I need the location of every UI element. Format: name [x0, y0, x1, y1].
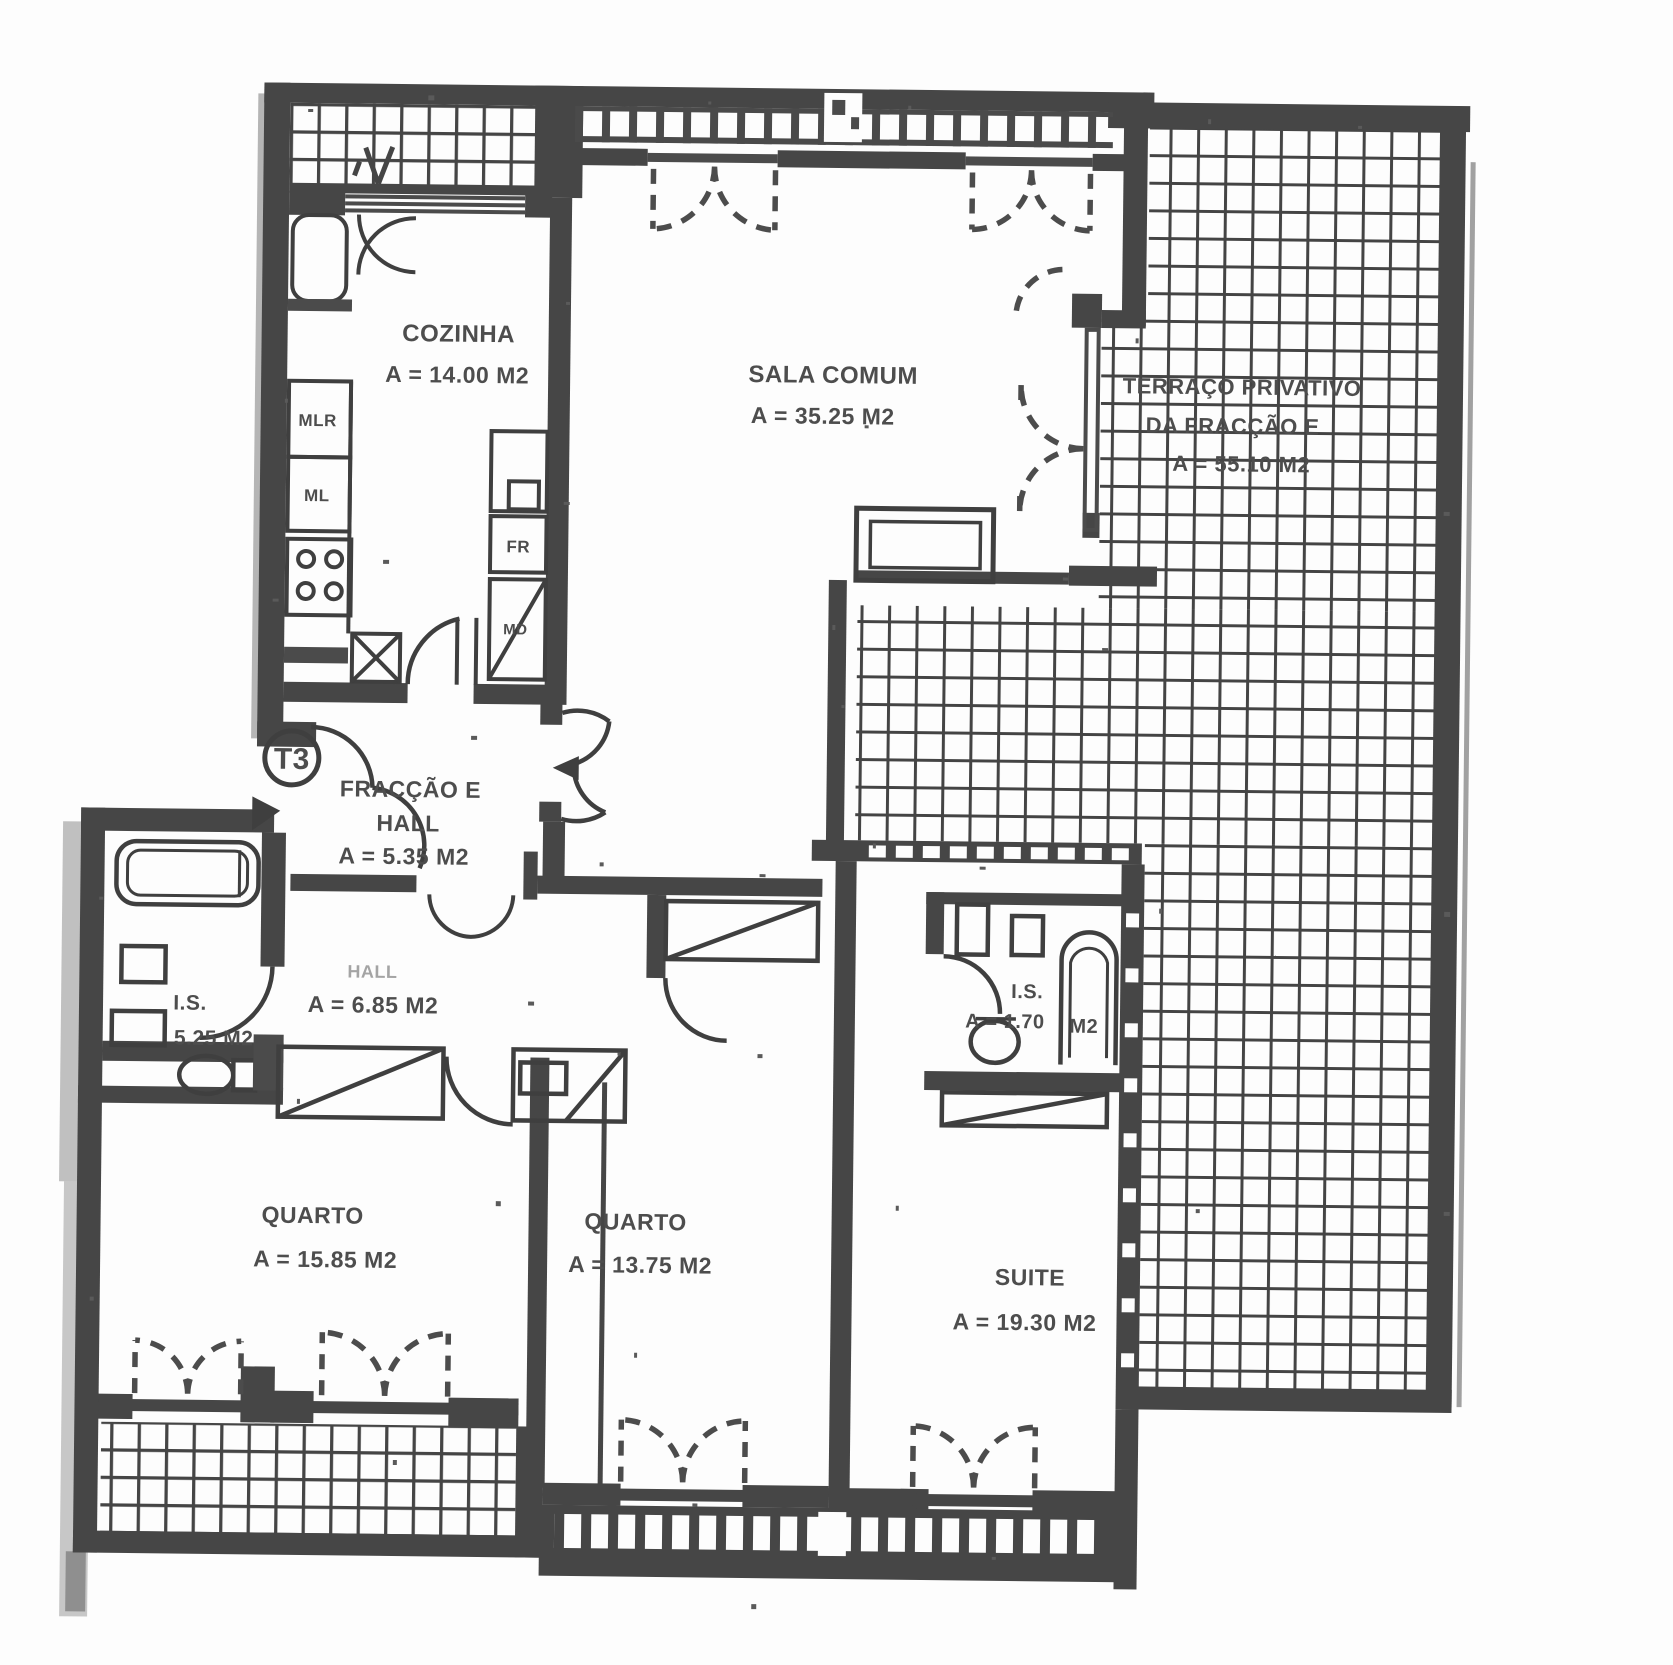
svg-text:MD: MD [503, 621, 528, 638]
svg-text:A = 15.85 M2: A = 15.85 M2 [253, 1245, 397, 1273]
svg-text:A = 1.70: A = 1.70 [965, 1010, 1045, 1033]
svg-text:A = 6.85 M2: A = 6.85 M2 [308, 991, 439, 1018]
svg-text:MLR: MLR [298, 411, 337, 430]
svg-text:5.25 M2: 5.25 M2 [174, 1027, 254, 1051]
svg-text:QUARTO: QUARTO [584, 1208, 687, 1235]
svg-text:T3: T3 [274, 743, 310, 776]
svg-text:A = 55.10 M2: A = 55.10 M2 [1172, 451, 1310, 478]
svg-text:HALL: HALL [376, 810, 440, 837]
svg-text:I.S.: I.S. [1011, 981, 1043, 1003]
svg-text:A = 35.25 M2: A = 35.25 M2 [751, 402, 895, 430]
svg-text:A = 19.30 M2: A = 19.30 M2 [952, 1308, 1096, 1336]
svg-text:HALL: HALL [347, 961, 397, 982]
svg-text:COZINHA: COZINHA [402, 320, 515, 348]
svg-text:ML: ML [304, 486, 330, 505]
svg-text:M2: M2 [1069, 1016, 1098, 1038]
svg-text:A = 13.75 M2: A = 13.75 M2 [568, 1251, 712, 1279]
svg-text:A = 5.35 M2: A = 5.35 M2 [338, 842, 469, 869]
svg-text:TERRAÇO PRIVATIVO: TERRAÇO PRIVATIVO [1123, 373, 1362, 401]
svg-text:FRACÇÃO E: FRACÇÃO E [340, 774, 482, 803]
svg-text:QUARTO: QUARTO [261, 1202, 364, 1229]
svg-text:I.S.: I.S. [173, 991, 207, 1014]
svg-text:FR: FR [506, 537, 530, 556]
svg-text:SALA COMUM: SALA COMUM [748, 361, 918, 390]
svg-text:A = 14.00 M2: A = 14.00 M2 [385, 361, 529, 389]
svg-text:SUITE: SUITE [995, 1264, 1066, 1291]
svg-text:DA FRACÇÃO E: DA FRACÇÃO E [1146, 412, 1320, 439]
